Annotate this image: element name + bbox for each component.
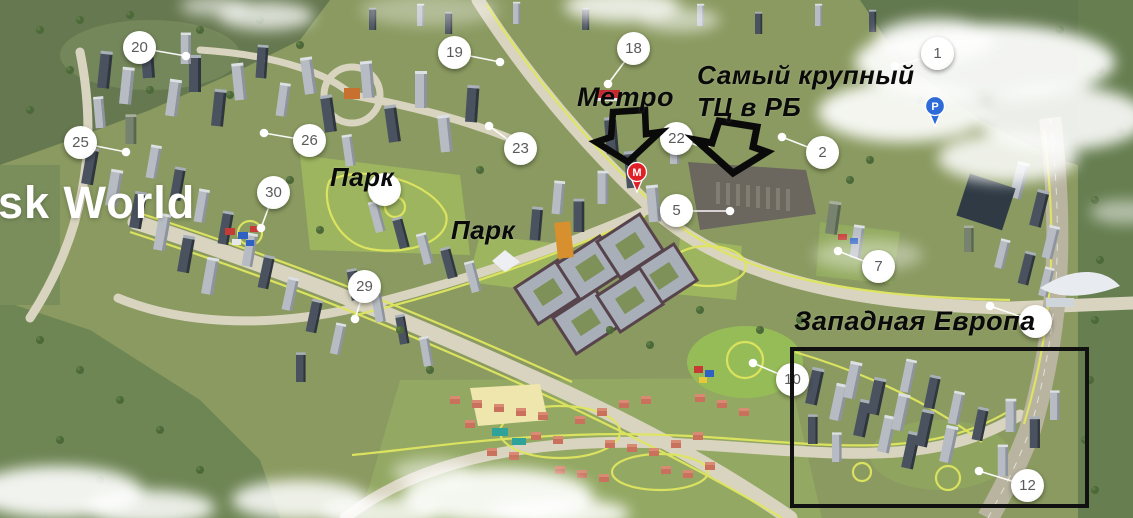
map-marker-1[interactable]: 1 xyxy=(921,37,954,70)
leader-dot xyxy=(834,247,843,256)
leader-dot xyxy=(485,122,494,131)
map-marker-2[interactable]: 2 xyxy=(806,136,839,169)
brand-text: sk World xyxy=(0,180,195,225)
map-marker-10[interactable]: 10 xyxy=(776,363,809,396)
label-park-1: Парк xyxy=(330,164,394,190)
leader-dot xyxy=(749,359,758,368)
map-marker-25[interactable]: 25 xyxy=(64,126,97,159)
label-mall-line1: Самый крупный xyxy=(697,62,914,88)
leader-dot xyxy=(260,129,269,138)
leader-dot xyxy=(975,467,984,476)
leader-lines-overlay: МP xyxy=(0,0,1133,518)
label-mall-line2: ТЦ в РБ xyxy=(697,94,801,120)
map-marker-22[interactable]: 22 xyxy=(660,122,693,155)
map-marker-5[interactable]: 5 xyxy=(660,194,693,227)
leader-dot xyxy=(351,315,360,324)
label-west-europe: Западная Европа xyxy=(794,308,1036,335)
label-metro: Метро xyxy=(577,84,674,111)
map-marker-26[interactable]: 26 xyxy=(293,124,326,157)
map-marker-18[interactable]: 18 xyxy=(617,32,650,65)
map-marker-12[interactable]: 12 xyxy=(1011,469,1044,502)
parking-pin-icon[interactable]: P xyxy=(926,97,945,127)
map-marker-30[interactable]: 30 xyxy=(257,176,290,209)
masterplan-map: МP 20191812526232223057291012 МетроСамый… xyxy=(0,0,1133,518)
leader-dot xyxy=(726,207,735,216)
svg-text:М: М xyxy=(632,167,641,179)
leader-dot xyxy=(257,224,266,233)
map-marker-29[interactable]: 29 xyxy=(348,270,381,303)
label-park-2: Парк xyxy=(451,217,515,243)
leader-dot xyxy=(702,144,711,153)
map-marker-23[interactable]: 23 xyxy=(504,132,537,165)
map-marker-7[interactable]: 7 xyxy=(862,250,895,283)
leader-dot xyxy=(496,58,505,67)
metro-pin-icon[interactable]: М xyxy=(628,163,647,193)
svg-text:P: P xyxy=(931,101,938,113)
leader-dot xyxy=(122,148,131,157)
leader-dot xyxy=(778,133,787,142)
map-marker-20[interactable]: 20 xyxy=(123,31,156,64)
map-marker-19[interactable]: 19 xyxy=(438,36,471,69)
leader-dot xyxy=(182,52,191,61)
